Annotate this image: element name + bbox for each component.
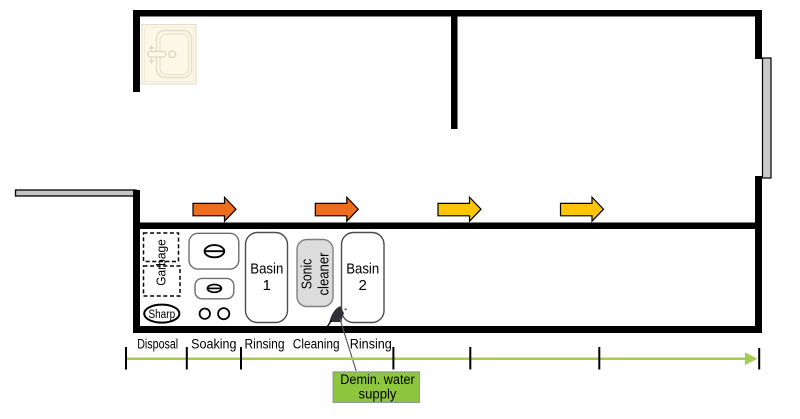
svg-text:Disposal: Disposal bbox=[137, 337, 178, 352]
svg-text:Soaking: Soaking bbox=[191, 337, 236, 352]
svg-text:Basin: Basin bbox=[346, 261, 379, 278]
svg-text:supply: supply bbox=[359, 387, 397, 402]
svg-text:Sonic: Sonic bbox=[299, 258, 316, 289]
svg-text:Rinsing: Rinsing bbox=[350, 337, 392, 352]
svg-text:1: 1 bbox=[263, 277, 271, 294]
svg-text:Rinsing: Rinsing bbox=[245, 337, 285, 352]
svg-text:Sharp: Sharp bbox=[148, 309, 175, 321]
svg-text:Demin. water: Demin. water bbox=[340, 372, 415, 387]
svg-text:Basin: Basin bbox=[250, 261, 283, 278]
svg-text:2: 2 bbox=[359, 277, 367, 294]
svg-text:Garbage: Garbage bbox=[154, 239, 169, 286]
svg-text:cleaner: cleaner bbox=[316, 253, 333, 296]
svg-text:Cleaning: Cleaning bbox=[293, 337, 340, 352]
